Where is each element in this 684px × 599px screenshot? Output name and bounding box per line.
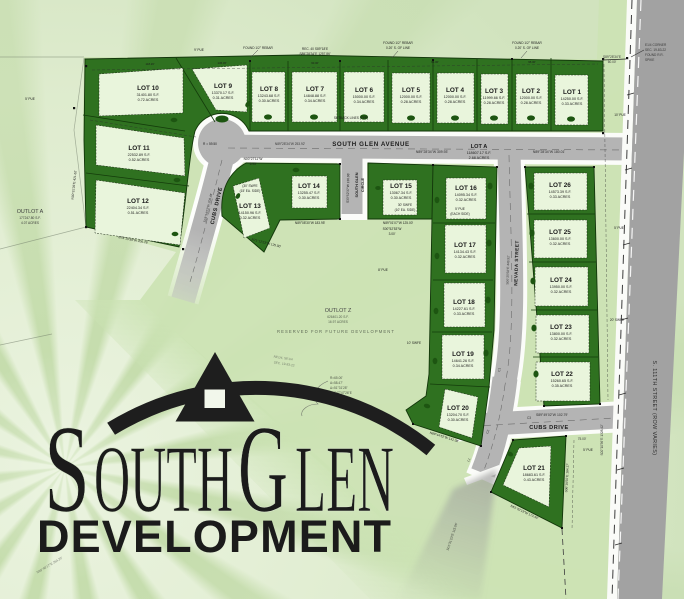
svg-text:DEVELOPMENT: DEVELOPMENT [37,511,391,562]
svg-text:N89°28'34"W 180.01': N89°28'34"W 180.01' [533,150,565,154]
svg-text:22532.89 S.F.: 22532.89 S.F. [128,153,151,157]
svg-text:0.20' S. OF LINE: 0.20' S. OF LINE [515,46,539,50]
svg-text:18683.61 S.F.: 18683.61 S.F. [523,473,546,477]
svg-text:14641.26 S.F.: 14641.26 S.F. [452,359,475,363]
svg-text:N89°28'34"W 309.93': N89°28'34"W 309.93' [416,150,448,154]
svg-text:14150.96 S.F.: 14150.96 S.F. [239,211,262,215]
svg-text:14573.39 S.F.: 14573.39 S.F. [549,190,572,194]
svg-text:(10' EA. SIDE): (10' EA. SIDE) [395,208,416,212]
svg-text:118607.17 S.F.: 118607.17 S.F. [467,151,492,155]
svg-text:LOT 21: LOT 21 [523,465,545,472]
svg-text:177247.80 S.F.: 177247.80 S.F. [19,216,41,220]
svg-text:0.30 ACRES: 0.30 ACRES [391,196,412,200]
svg-text:OUTLOT Z: OUTLOT Z [325,308,352,314]
svg-text:0.28 ACRES: 0.28 ACRES [401,100,422,104]
svg-text:31401.80 S.F.: 31401.80 S.F. [137,93,160,97]
svg-text:FOUND 1/2" REBAR: FOUND 1/2" REBAR [383,41,413,45]
svg-text:N89°28'34"W 253.92': N89°28'34"W 253.92' [275,142,306,146]
svg-text:12000.00 S.F.: 12000.00 S.F. [444,95,467,99]
svg-text:60.00': 60.00' [311,61,319,65]
svg-text:145.36': 145.36' [217,61,227,65]
svg-text:14134.43 S.F.: 14134.43 S.F. [454,250,477,254]
svg-text:30' SWFE: 30' SWFE [398,203,412,207]
svg-text:LOT 10: LOT 10 [137,85,159,92]
svg-text:0.28 ACRES: 0.28 ACRES [484,101,505,105]
svg-text:(30' SWFE: (30' SWFE [242,184,257,188]
svg-text:N00°31'26"E 421.62': N00°31'26"E 421.62' [70,170,77,200]
svg-text:CIRCLE: CIRCLE [361,177,365,192]
svg-text:0.30 ACRES: 0.30 ACRES [259,99,280,103]
svg-text:9' PUE: 9' PUE [194,48,204,52]
svg-text:A=58.47': A=58.47' [330,381,343,385]
svg-text:LOT 13: LOT 13 [239,203,261,210]
svg-text:R=65.00': R=65.00' [330,376,343,380]
svg-text:LOT 24: LOT 24 [550,277,572,284]
svg-text:LOT 14: LOT 14 [298,183,320,190]
svg-text:0.20' S. OF LINE: 0.20' S. OF LINE [386,46,410,50]
svg-text:FOUND 1/2" REBAR: FOUND 1/2" REBAR [243,46,273,50]
svg-text:S. 111TH STREET (ROW VARIES): S. 111TH STREET (ROW VARIES) [651,361,657,456]
svg-text:OUTLOT A: OUTLOT A [17,209,44,215]
svg-text:LOT 22: LOT 22 [551,371,573,378]
svg-text:LOT 18: LOT 18 [453,299,475,306]
svg-text:C3: C3 [527,416,531,420]
svg-text:61.00': 61.00' [431,60,439,64]
svg-text:REC. 40 S89°18'E: REC. 40 S89°18'E [302,47,328,51]
svg-text:LOT 12: LOT 12 [127,198,149,205]
svg-text:(15' EA. SIDE): (15' EA. SIDE) [240,189,261,193]
svg-text:0.32 ACRES: 0.32 ACRES [550,242,571,246]
svg-text:SOUTH GLEN: SOUTH GLEN [355,172,359,197]
svg-text:LOT 25: LOT 25 [549,229,571,236]
svg-text:LOT 17: LOT 17 [454,242,476,249]
svg-text:13255.47 S.F.: 13255.47 S.F. [298,191,321,195]
svg-text:LOT 4: LOT 4 [446,87,465,94]
svg-text:0.28 ACRES: 0.28 ACRES [445,100,466,104]
svg-text:5' PUE: 5' PUE [25,97,35,101]
svg-text:15000.00 S.F.: 15000.00 S.F. [353,95,376,99]
svg-text:0.32 ACRES: 0.32 ACRES [240,216,261,220]
svg-text:14848.88 S.F.: 14848.88 S.F. [304,94,327,98]
svg-text:0.28 ACRES: 0.28 ACRES [521,101,542,105]
svg-text:LOT 20: LOT 20 [447,405,469,412]
svg-text:LOT A: LOT A [471,144,488,150]
svg-text:(EACH SIDE): (EACH SIDE) [450,212,469,216]
svg-text:S89°49'02"W 102.79': S89°49'02"W 102.79' [536,413,568,417]
svg-text:LOT 11: LOT 11 [128,145,150,152]
svg-text:CUBS DRIVE: CUBS DRIVE [529,425,569,431]
svg-text:SPIKE: SPIKE [645,58,654,62]
svg-text:5' PUE: 5' PUE [583,448,593,452]
svg-text:118.26': 118.26' [146,62,155,66]
svg-text:13600.00 S.F.: 13600.00 S.F. [549,237,572,241]
svg-text:0.35 ACRES: 0.35 ACRES [552,384,573,388]
svg-text:5' PUE: 5' PUE [455,207,465,211]
svg-text:LOT 26: LOT 26 [549,182,571,189]
svg-text:3.00': 3.00' [389,232,396,236]
svg-text:SOUTH GLEN AVENUE: SOUTH GLEN AVENUE [332,141,410,148]
svg-text:75.00': 75.00' [578,437,587,441]
svg-text:13204.70 S.F.: 13204.70 S.F. [447,413,470,417]
svg-text:LOT 6: LOT 6 [355,87,374,94]
svg-text:RESERVED FOR FUTURE DEVELOPMEN: RESERVED FOR FUTURE DEVELOPMENT [277,329,395,334]
svg-text:0.30 ACRES: 0.30 ACRES [299,196,320,200]
svg-text:10' PUE: 10' PUE [614,113,626,117]
svg-text:S89°28'34"E 1257.86': S89°28'34"E 1257.86' [300,52,331,56]
svg-text:20' SWFE: 20' SWFE [610,318,624,322]
svg-text:5.93': 5.93' [250,162,257,166]
svg-text:0.72 ACRES: 0.72 ACRES [138,98,159,102]
svg-text:0.30 ACRES: 0.30 ACRES [448,418,469,422]
svg-text:10' SWFE: 10' SWFE [407,341,421,345]
svg-text:12000.00 S.F.: 12000.00 S.F. [520,96,543,100]
svg-text:14250.00 S.F.: 14250.00 S.F. [561,97,584,101]
svg-text:13067.34 S.F.: 13067.34 S.F. [390,191,413,195]
svg-text:LOT 5: LOT 5 [402,87,421,94]
svg-text:Δ=51°31'28": Δ=51°31'28" [330,386,348,390]
svg-text:LOT 3: LOT 3 [485,88,504,95]
svg-text:N00°27'11"W: N00°27'11"W [244,157,263,161]
svg-text:16.97 ACRES: 16.97 ACRES [328,320,348,324]
svg-text:626401.20 S.F.: 626401.20 S.F. [327,315,349,319]
svg-text:13370.17 S.F.: 13370.17 S.F. [212,91,235,95]
svg-text:12000.00 S.F.: 12000.00 S.F. [400,95,423,99]
svg-text:2.68 ACRES: 2.68 ACRES [469,156,490,160]
svg-text:0.32 ACRES: 0.32 ACRES [455,255,476,259]
svg-text:95.00': 95.00' [528,60,536,64]
svg-text:0.51 ACRES: 0.51 ACRES [128,211,149,215]
svg-text:0.32 ACRES: 0.32 ACRES [456,198,477,202]
svg-text:0.32 ACRES: 0.32 ACRES [551,290,572,294]
svg-text:13800.00 S.F.: 13800.00 S.F. [550,332,573,336]
svg-text:5' PUE: 5' PUE [614,226,624,230]
svg-text:0.31 ACRES: 0.31 ACRES [213,96,234,100]
svg-text:LOT 15: LOT 15 [390,183,412,190]
svg-text:SETBACK LINES (TYP): SETBACK LINES (TYP) [334,116,368,120]
svg-text:N89°01'07"W 125.00': N89°01'07"W 125.00' [383,221,414,225]
svg-text:E1/4 CORNER: E1/4 CORNER [645,43,667,47]
svg-text:LOT 16: LOT 16 [455,185,477,192]
svg-text:FOUND R.R.: FOUND R.R. [645,53,664,57]
svg-text:14227.61 S.F.: 14227.61 S.F. [453,307,476,311]
svg-text:LOT 7: LOT 7 [306,86,325,93]
svg-text:4.07 ACRES: 4.07 ACRES [21,221,39,225]
svg-text:11999.66 S.F.: 11999.66 S.F. [483,96,506,100]
svg-text:60.00': 60.00' [608,60,617,64]
svg-text:0.33 ACRES: 0.33 ACRES [454,312,475,316]
svg-text:LOT 19: LOT 19 [452,351,474,358]
svg-text:S89°28'34"E: S89°28'34"E [603,55,621,59]
svg-text:LOT 8: LOT 8 [260,86,279,93]
svg-text:15260.65 S.F.: 15260.65 S.F. [551,379,574,383]
svg-text:0.34 ACRES: 0.34 ACRES [305,99,326,103]
svg-text:FOUND 1/2" REBAR: FOUND 1/2" REBAR [512,41,542,45]
svg-text:0.52 ACRES: 0.52 ACRES [129,158,150,162]
svg-text:S30°52'37"W 136.96': S30°52'37"W 136.96' [346,173,351,203]
svg-text:R = 59.50: R = 59.50 [203,142,217,146]
svg-text:0.34 ACRES: 0.34 ACRES [354,100,375,104]
svg-text:13950.00 S.F.: 13950.00 S.F. [550,285,573,289]
svg-text:LOT 23: LOT 23 [550,324,572,331]
svg-text:S00°10'56"E 1328.42': S00°10'56"E 1328.42' [600,424,604,455]
svg-text:14095.34 S.F.: 14095.34 S.F. [455,193,478,197]
svg-text:LOT 1: LOT 1 [563,89,582,96]
svg-text:LOT 9: LOT 9 [214,83,233,90]
svg-text:LOT 2: LOT 2 [522,88,541,95]
svg-text:0.32 ACRES: 0.32 ACRES [551,337,572,341]
svg-text:13243.68 S.F.: 13243.68 S.F. [258,94,281,98]
svg-text:SEC. 19-83-22: SEC. 19-83-22 [645,48,666,52]
svg-text:N89°08'30"W 183.95': N89°08'30"W 183.95' [295,221,326,225]
svg-text:22404.34 S.F.: 22404.34 S.F. [127,206,150,210]
svg-text:8' PUE: 8' PUE [378,268,388,272]
svg-text:0.33 ACRES: 0.33 ACRES [550,195,571,199]
svg-text:S00°52'53"W: S00°52'53"W [383,227,402,231]
svg-text:0.34 ACRES: 0.34 ACRES [453,364,474,368]
svg-text:0.43 ACRES: 0.43 ACRES [524,478,545,482]
svg-text:0.33 ACRES: 0.33 ACRES [562,102,583,106]
